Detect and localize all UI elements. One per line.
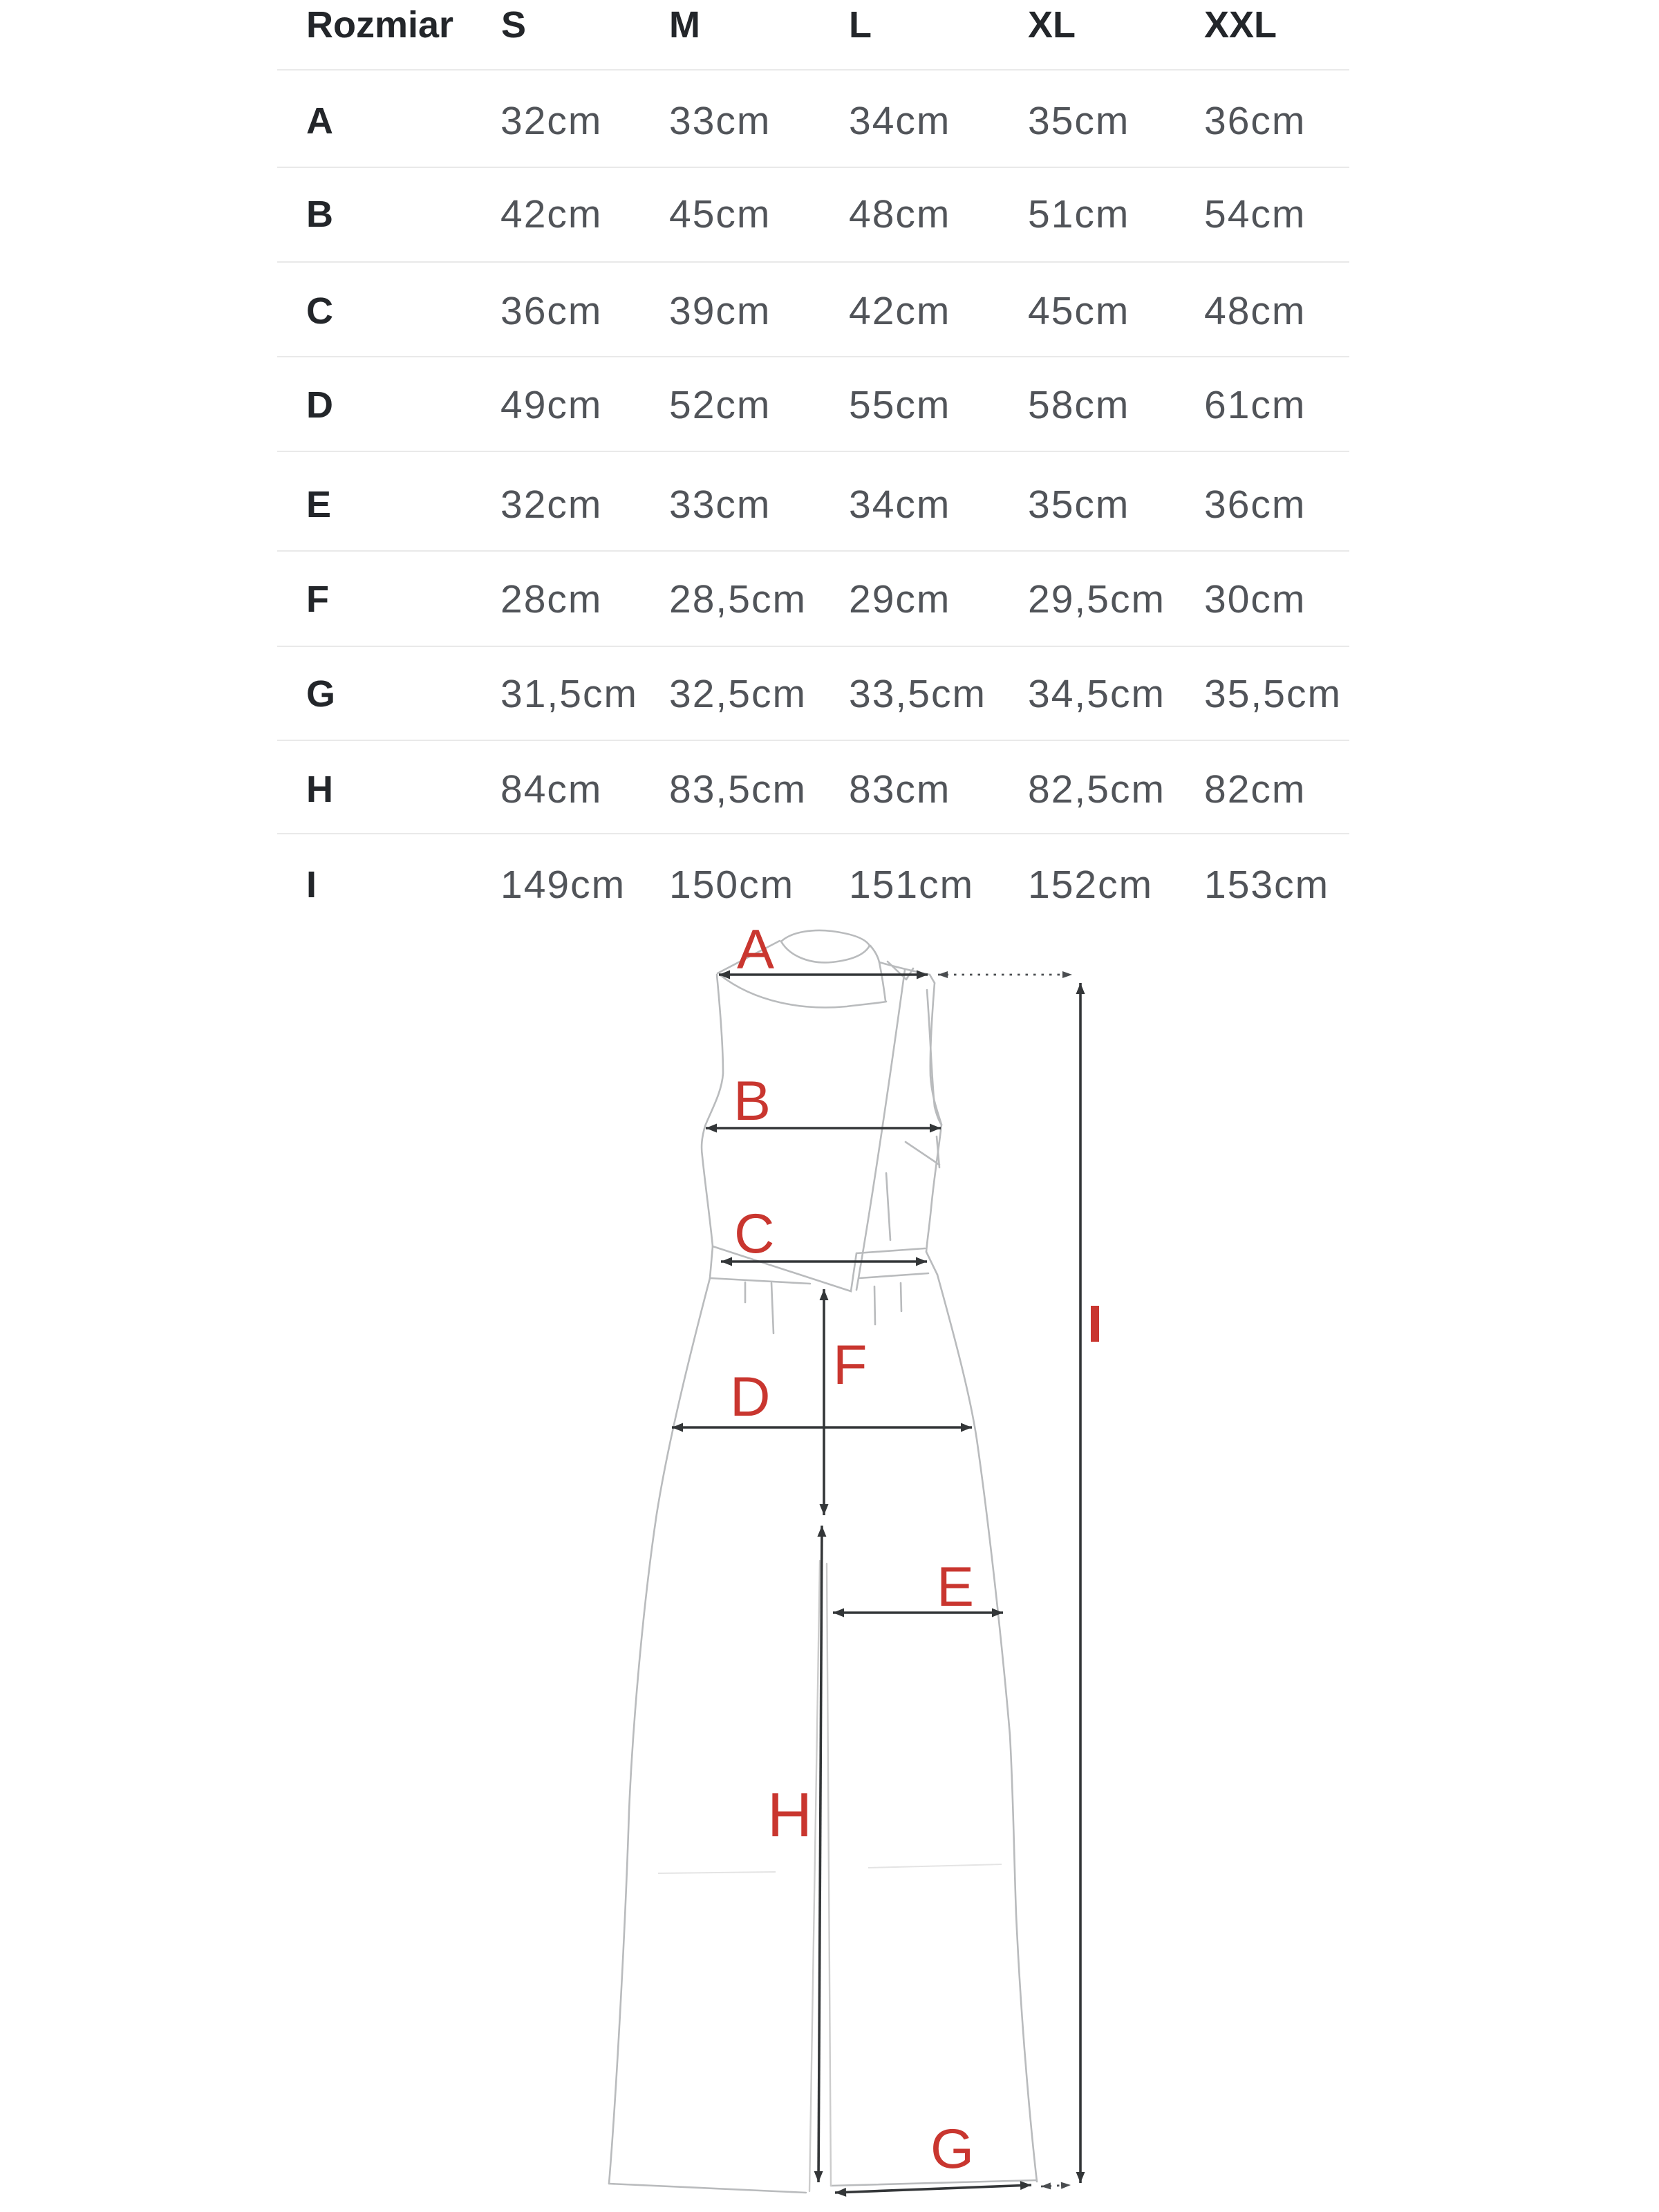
svg-text:G: G — [930, 2118, 974, 2180]
svg-text:E: E — [937, 1556, 974, 1618]
svg-text:D: D — [730, 1366, 771, 1428]
svg-text:F: F — [833, 1334, 867, 1396]
svg-text:C: C — [734, 1203, 775, 1265]
svg-text:H: H — [767, 1781, 812, 1850]
svg-text:A: A — [737, 919, 774, 981]
svg-text:B: B — [733, 1070, 771, 1132]
